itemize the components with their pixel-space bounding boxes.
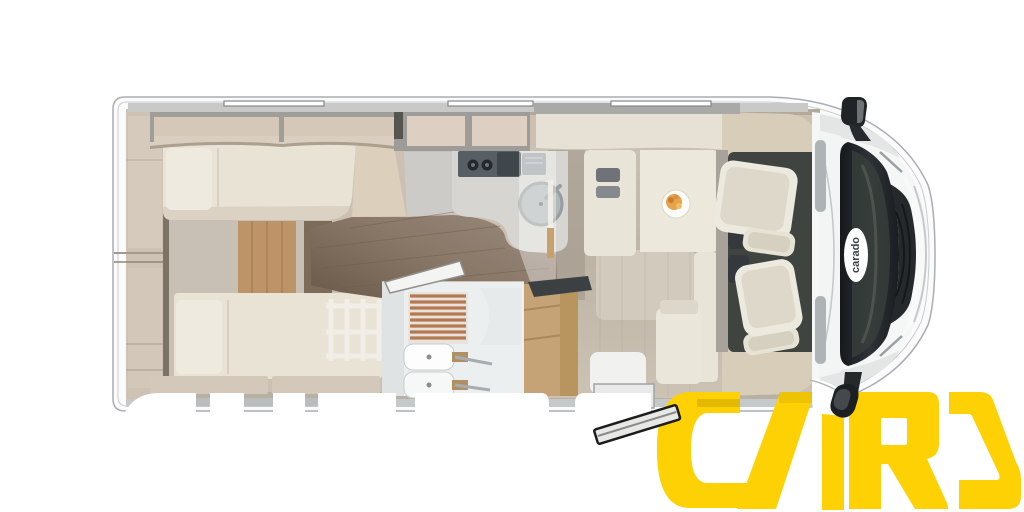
svg-text:carado: carado: [850, 237, 862, 273]
